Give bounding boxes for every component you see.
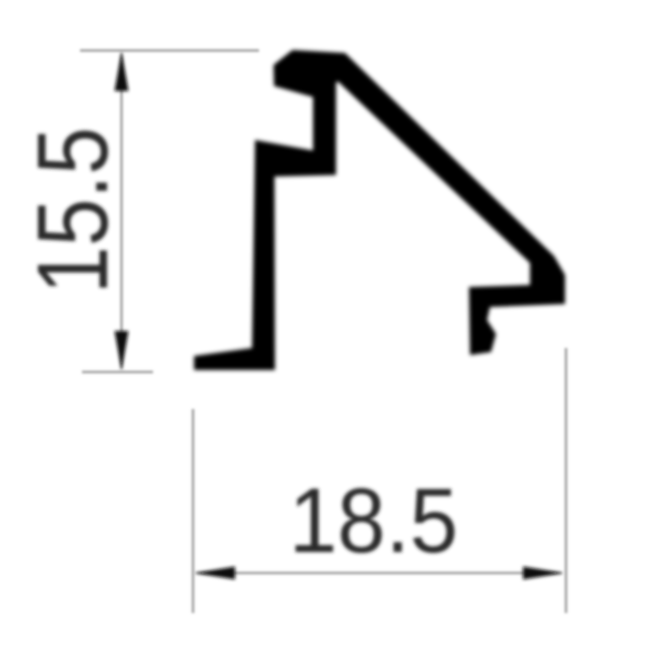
svg-text:15.5: 15.5: [17, 127, 129, 294]
svg-text:18.5: 18.5: [289, 470, 458, 572]
